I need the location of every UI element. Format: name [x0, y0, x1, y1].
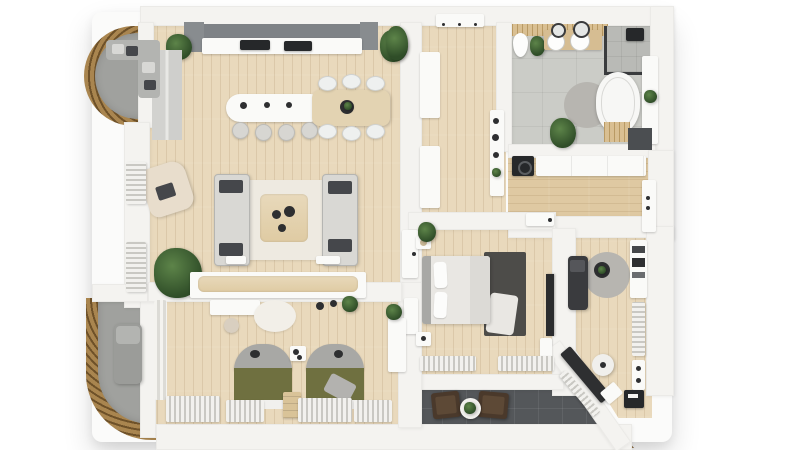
shelf-items	[632, 258, 645, 267]
chair-center	[600, 362, 606, 368]
shower-glass	[604, 26, 607, 74]
balcony-pillow	[142, 62, 155, 73]
bathroom-plant-lower	[550, 118, 576, 148]
headboard-decor	[334, 350, 343, 358]
shelf-decor	[636, 366, 641, 371]
sofa-left	[214, 174, 250, 266]
washer-door	[518, 161, 532, 175]
console-decor	[493, 152, 499, 158]
master-bedroom-door	[526, 213, 554, 226]
island-decor	[240, 102, 247, 109]
kids-desk-stool	[224, 318, 239, 333]
bed-pillow	[433, 262, 447, 289]
tv-panel	[546, 274, 554, 336]
nightstand	[416, 332, 431, 346]
file-paper	[628, 394, 638, 398]
file-box	[624, 390, 644, 408]
living-radiator	[126, 162, 146, 204]
office-chair	[592, 354, 614, 376]
coffee-table-decor	[278, 224, 286, 232]
door-handle	[646, 196, 650, 200]
console-decor	[493, 118, 499, 124]
table-plant	[344, 102, 352, 110]
daybed-pillow	[570, 260, 585, 272]
kitchen-island	[226, 94, 316, 122]
kids-radiator	[226, 400, 264, 422]
living-radiator	[126, 242, 146, 292]
kids-radiator	[298, 398, 352, 422]
balcony-pillow	[112, 44, 124, 54]
terrace-lounge-chair	[431, 391, 462, 420]
balcony-pillow	[126, 46, 138, 56]
office-bookshelf	[630, 240, 647, 298]
bed-headboard	[422, 256, 431, 324]
kids-radiator	[166, 396, 220, 422]
dining-chair	[366, 124, 385, 139]
island-decor	[264, 102, 270, 108]
ledge-plant	[644, 90, 657, 103]
office-side-table	[594, 262, 610, 278]
coffee-table	[260, 194, 308, 242]
kitchen-countertop	[202, 38, 362, 54]
sofa-pillow	[219, 243, 243, 256]
bed-pillow	[433, 292, 447, 319]
double-bed	[422, 256, 490, 324]
bar-stool	[255, 124, 272, 141]
dining-chair	[318, 124, 337, 139]
chair-cushion	[481, 395, 504, 415]
bedroom-radiator	[420, 356, 476, 371]
sofa-pillow	[219, 180, 243, 193]
bar-stool	[278, 124, 295, 141]
hall-wardrobe	[420, 52, 440, 118]
wall-shelf	[226, 256, 246, 264]
island-decor	[286, 102, 292, 108]
wall-office-right	[646, 226, 674, 396]
bed-blanket-fold	[470, 256, 490, 324]
kids-radiator	[354, 400, 392, 422]
office-radiator	[632, 302, 645, 356]
hall-console	[490, 110, 504, 196]
shelf-decor	[636, 378, 641, 383]
door-handle	[412, 252, 416, 256]
kids-desk	[210, 300, 260, 315]
round-mirror	[573, 21, 590, 38]
hall-corner-plant	[386, 26, 408, 60]
dining-chair	[342, 126, 361, 141]
dining-table	[312, 90, 390, 126]
bedroom-plant	[418, 222, 436, 242]
floor-plan-canvas	[0, 0, 800, 450]
closet-cabinets	[536, 156, 646, 176]
entrance-door	[436, 14, 484, 27]
door-handle	[646, 206, 650, 210]
console-decor	[492, 134, 499, 141]
kitchen-tall-cabinet-right	[360, 22, 378, 50]
bar-stool	[232, 122, 249, 139]
chair-cushion	[435, 395, 457, 415]
kids-decor	[330, 300, 337, 307]
dining-chair	[318, 76, 337, 91]
kids-decor	[316, 302, 324, 310]
coffee-table-decor	[284, 206, 295, 217]
bedroom-radiator	[498, 356, 554, 371]
office-shelf-low	[632, 360, 645, 390]
door-hinge	[442, 23, 445, 26]
round-mirror	[551, 23, 566, 38]
coffee-table-decor	[272, 210, 281, 219]
office-daybed	[568, 256, 588, 310]
shower-head	[626, 28, 644, 41]
headboard-decor	[250, 350, 260, 358]
shelf-items	[632, 272, 645, 278]
dark-bath-mat	[628, 128, 652, 150]
lounge-chair-lower-balcony	[114, 324, 142, 384]
kitchen-sink	[240, 40, 270, 50]
kids-room-door	[404, 298, 418, 334]
kids-round-rug	[254, 300, 296, 332]
wall-master-bottom	[404, 374, 564, 390]
console-plant	[492, 168, 501, 177]
kids-curtain	[154, 300, 167, 400]
balcony-pillow	[144, 80, 156, 90]
sofa-right	[322, 174, 358, 266]
bathroom-plant	[530, 36, 545, 56]
timber-bath-mat	[604, 122, 630, 142]
terrace-plant	[464, 402, 476, 414]
side-table-plant	[598, 266, 606, 274]
kids-nightstand	[290, 346, 306, 361]
kids-wardrobe	[388, 318, 406, 372]
door-handle	[548, 218, 552, 222]
shelf-items	[632, 246, 645, 253]
wall-bottom	[156, 424, 632, 450]
door-hinge	[474, 23, 477, 26]
nightstand-decor	[421, 336, 426, 341]
bedroom-throw	[485, 292, 518, 336]
kitchen-upper-cabinets	[186, 24, 378, 39]
terrace-lounge-chair	[477, 391, 509, 420]
dining-chair	[366, 76, 385, 91]
armchair-pillow	[155, 182, 176, 201]
hall-wardrobe	[420, 146, 440, 208]
wall-shelf	[316, 256, 340, 264]
kitchen-cooktop	[284, 41, 312, 51]
sofa-pillow	[328, 181, 352, 194]
lounge-chair-back	[116, 326, 140, 344]
nightstand-decor	[297, 355, 302, 360]
door-hinge	[458, 23, 461, 26]
kids-plant	[342, 296, 358, 312]
kids-plant-2	[386, 304, 402, 320]
sofa-pillow	[328, 239, 352, 252]
dining-chair	[342, 74, 361, 89]
washing-machine	[512, 156, 534, 176]
closet-door	[642, 180, 656, 232]
sideboard-bench-top	[198, 276, 358, 292]
